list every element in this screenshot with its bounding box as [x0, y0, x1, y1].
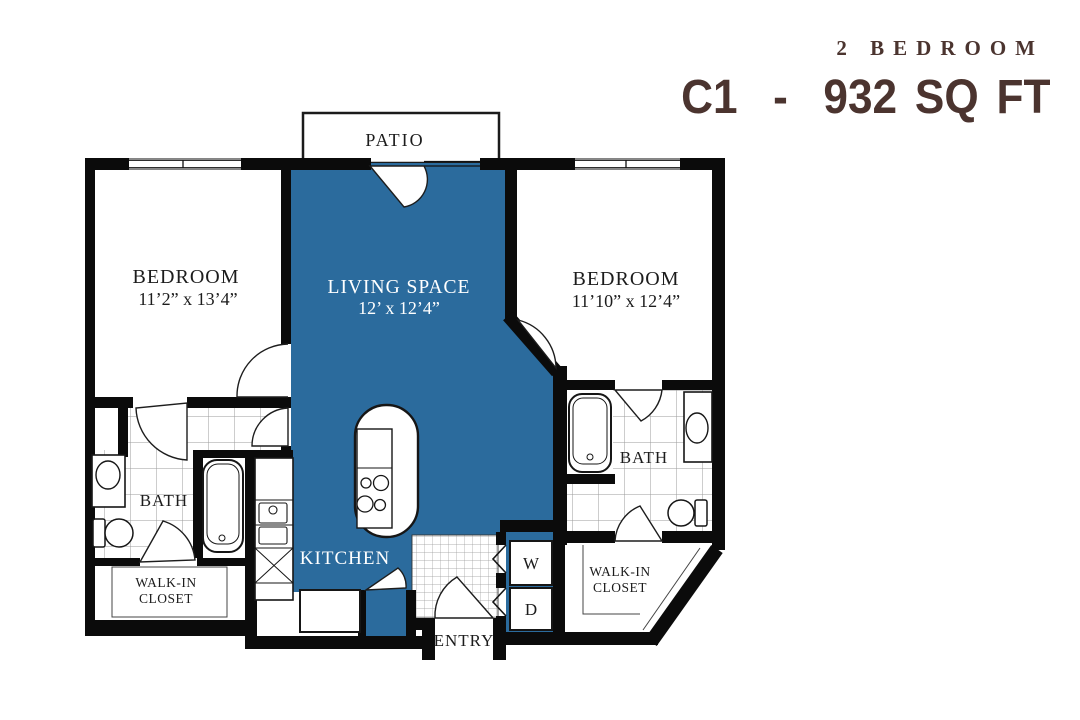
- dryer-label: D: [525, 600, 537, 619]
- wall: [496, 616, 506, 632]
- window-bedroom-right: [575, 159, 680, 170]
- closet-right-label-1: WALK-IN: [589, 564, 650, 579]
- vanity-sink-left: [92, 455, 125, 507]
- kitchen-sink-faucet: [269, 506, 277, 514]
- entry-label: ENTRY: [434, 631, 495, 650]
- wall-chamfer: [651, 549, 717, 642]
- closet-left-label-1: WALK-IN: [135, 575, 196, 590]
- wall: [662, 380, 712, 390]
- wall: [245, 636, 422, 649]
- kitchen-label: KITCHEN: [300, 548, 390, 569]
- wall: [553, 545, 565, 632]
- wall: [187, 397, 291, 408]
- kitchen-cabinet: [300, 590, 360, 632]
- patio-label: PATIO: [365, 130, 424, 150]
- living-space-label: LIVING SPACE: [328, 277, 471, 298]
- bathtub-left: [203, 460, 243, 552]
- wall: [500, 520, 566, 532]
- bedroom-left-dims: 11’2” x 13’4”: [138, 289, 237, 309]
- wall: [496, 573, 506, 588]
- bedroom-right-label: BEDROOM: [572, 268, 679, 290]
- bedroom-left-label: BEDROOM: [132, 266, 239, 288]
- bathtub-right: [567, 390, 613, 474]
- wall: [712, 158, 725, 550]
- bath-left-label: BATH: [140, 491, 188, 510]
- closet-left-label-2: CLOSET: [139, 591, 193, 606]
- toilet-left: [93, 519, 133, 547]
- living-space-dims: 12’ x 12’4”: [358, 298, 440, 318]
- vanity-sink-right: [684, 392, 712, 462]
- vestibule-floor: [366, 590, 406, 636]
- wall: [553, 380, 615, 390]
- bedroom-right-dims: 11’10” x 12’4”: [572, 291, 680, 311]
- wall: [197, 558, 245, 566]
- wall: [195, 450, 293, 458]
- wall: [118, 397, 128, 457]
- floor-plan-drawing: PATIO BEDROOM 11’2” x 13’4” LIVING SPACE…: [0, 0, 1080, 720]
- washer-label: W: [523, 554, 540, 573]
- wall: [553, 366, 567, 545]
- wall: [662, 531, 712, 543]
- bedroom-left-door: [237, 344, 288, 397]
- kitchen-counter: [255, 458, 293, 600]
- wall: [496, 532, 506, 545]
- wall: [553, 474, 615, 484]
- toilet-right: [668, 500, 707, 526]
- wall: [85, 620, 257, 636]
- wall: [500, 632, 658, 645]
- wall: [193, 450, 203, 558]
- wall: [406, 590, 416, 640]
- wall: [85, 558, 140, 566]
- bath-right-label: BATH: [620, 448, 668, 467]
- closet-right-label-2: CLOSET: [593, 580, 647, 595]
- window-bedroom-left: [129, 159, 241, 170]
- wall: [555, 531, 615, 543]
- kitchen-island: [355, 405, 418, 537]
- wall: [505, 158, 517, 321]
- wall: [281, 158, 291, 344]
- floor-plan-page: 2 BEDROOM C1 - 932 SQ FT: [0, 0, 1080, 720]
